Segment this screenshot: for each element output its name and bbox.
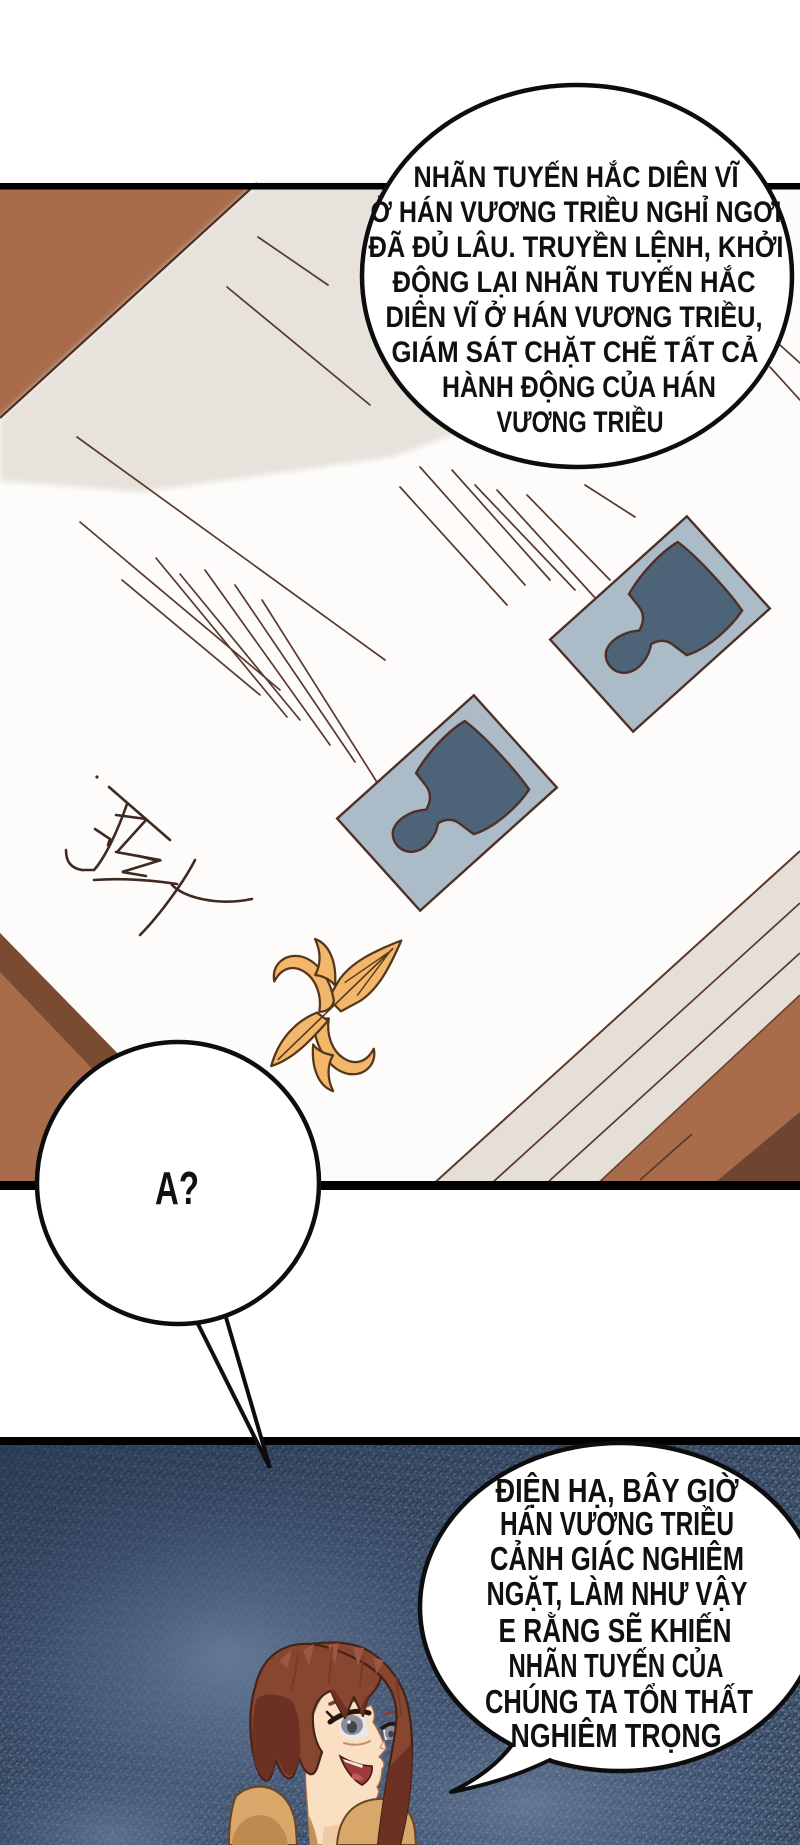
svg-text:ĐÃ ĐỦ LÂU. TRUYỀN LỆNH, KHỞI: ĐÃ ĐỦ LÂU. TRUYỀN LỆNH, KHỞI [369,230,784,264]
svg-text:HÀNH ĐỘNG CỦA HÁN: HÀNH ĐỘNG CỦA HÁN [442,370,716,404]
svg-text:NHÃN TUYẾN HẮC DIÊN VĨ: NHÃN TUYẾN HẮC DIÊN VĨ [414,160,740,194]
svg-text:HÁN VƯƠNG TRIỀU: HÁN VƯƠNG TRIỀU [500,1505,734,1542]
svg-text:ĐIỆN HẠ, BÂY GIỜ: ĐIỆN HẠ, BÂY GIỜ [496,1472,740,1509]
svg-text:ĐỘNG LẠI NHÃN TUYẾN HẮC: ĐỘNG LẠI NHÃN TUYẾN HẮC [393,265,756,299]
svg-text:DIÊN VĨ Ở HÁN VƯƠNG TRIỀU,: DIÊN VĨ Ở HÁN VƯƠNG TRIỀU, [386,300,763,334]
svg-text:A?: A? [155,1162,199,1214]
svg-text:NGẶT, LÀM NHƯ VẬY: NGẶT, LÀM NHƯ VẬY [487,1575,748,1612]
svg-text:NGHIÊM TRỌNG: NGHIÊM TRỌNG [511,1717,722,1754]
svg-text:NHÃN TUYẾN CỦA: NHÃN TUYẾN CỦA [509,1647,724,1684]
svg-text:E RẰNG SẼ KHIẾN: E RẰNG SẼ KHIẾN [499,1612,732,1649]
svg-text:Ở HÁN VƯƠNG TRIỀU NGHỈ NGƠI: Ở HÁN VƯƠNG TRIỀU NGHỈ NGƠI [371,195,782,229]
svg-text:VƯƠNG TRIỀU: VƯƠNG TRIỀU [497,405,664,439]
svg-text:CẢNH GIÁC NGHIÊM: CẢNH GIÁC NGHIÊM [490,1540,744,1577]
svg-text:GIÁM SÁT CHẶT CHẼ TẤT CẢ: GIÁM SÁT CHẶT CHẼ TẤT CẢ [392,335,759,369]
svg-text:CHÚNG TA TỔN THẤT: CHÚNG TA TỔN THẤT [485,1683,753,1720]
